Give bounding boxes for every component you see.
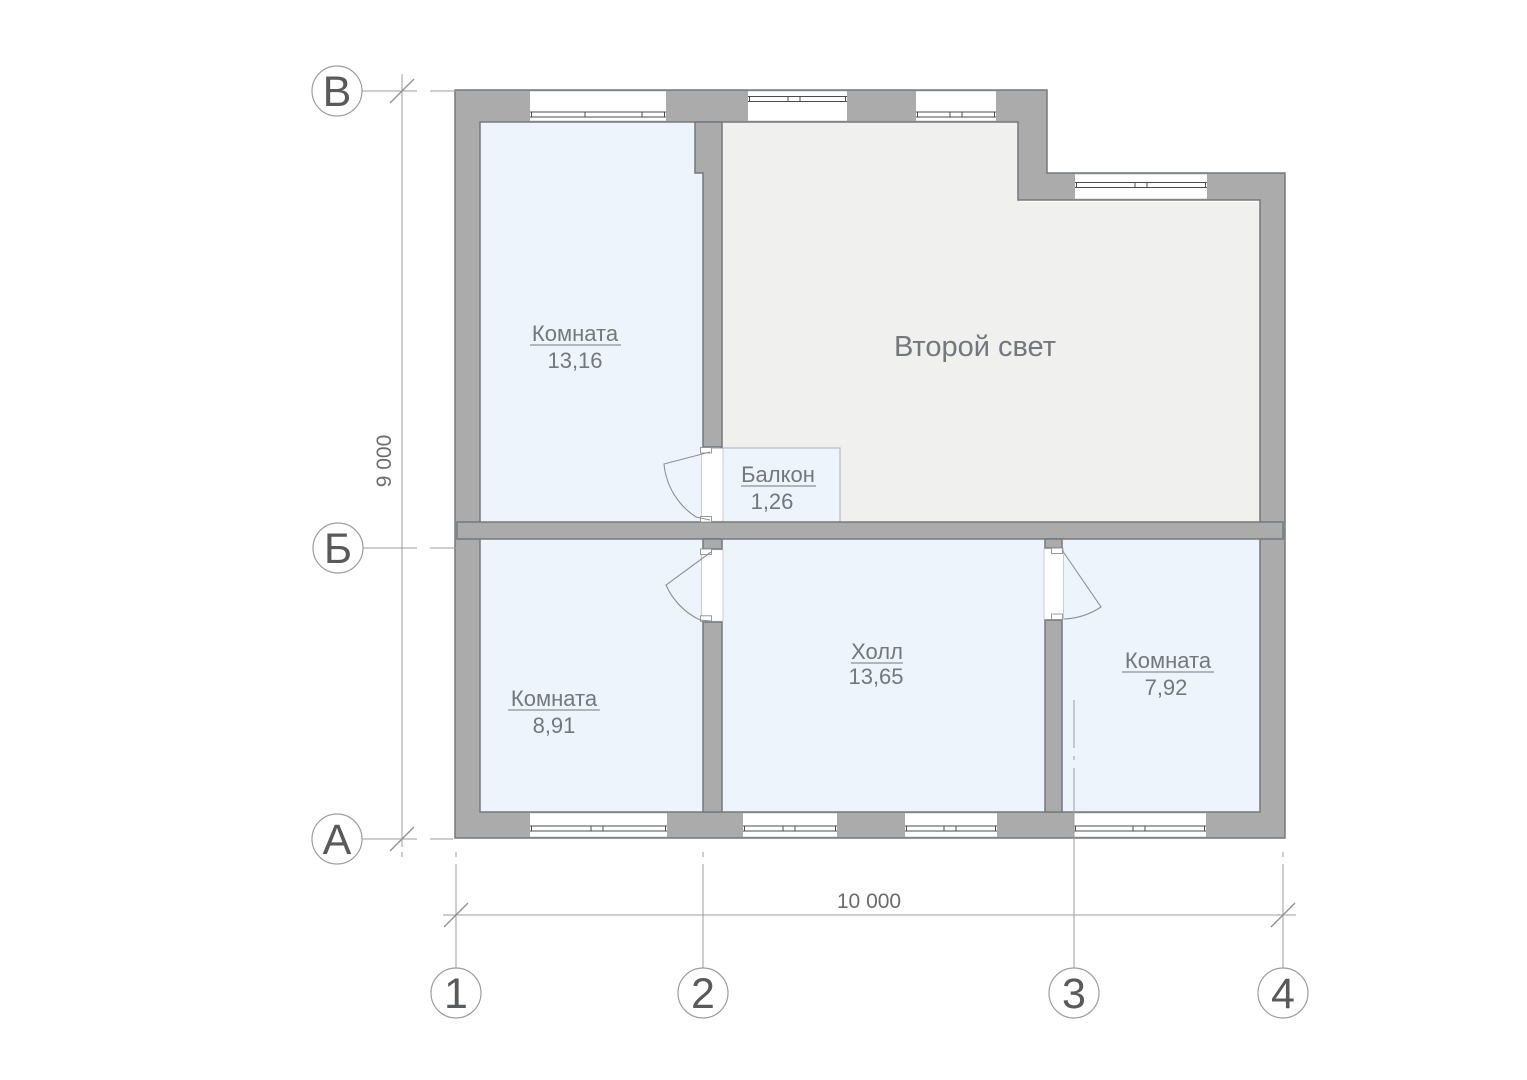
- room-area: 13,65: [848, 664, 903, 689]
- floor-plan-svg: В Б А 9 000 1 2: [0, 0, 1527, 1080]
- axis-col-2-label: 2: [691, 970, 715, 1018]
- axis-col-1-label: 1: [444, 970, 468, 1018]
- dimension-horizontal: 10 000: [443, 890, 1296, 927]
- room-name: Холл: [851, 639, 903, 664]
- room-area: 1,26: [751, 489, 794, 514]
- inner-wall-vertical-left-lower: [703, 622, 722, 812]
- room-label-hall: Холл 13,65: [848, 639, 903, 689]
- floor-plan-page: В Б А 9 000 1 2: [0, 0, 1527, 1080]
- room-label-second-light: Второй свет: [894, 331, 1056, 363]
- axis-col-3-label: 3: [1062, 970, 1086, 1018]
- window-top-1: [530, 91, 666, 120]
- inner-wall-vertical-right-stub: [1045, 539, 1062, 548]
- room-name: Второй свет: [894, 331, 1056, 363]
- window-step: [1075, 174, 1207, 198]
- room-name: Балкон: [741, 462, 815, 487]
- axis-col-2: 2: [678, 852, 728, 1018]
- axis-col-1: 1: [431, 852, 481, 1018]
- inner-wall-vertical-left-stub: [703, 539, 722, 549]
- axis-row-a-label: А: [323, 816, 352, 864]
- window-bottom-3: [905, 813, 997, 836]
- axis-row-v: В: [312, 66, 456, 116]
- room-area: 7,92: [1145, 675, 1188, 700]
- axis-row-b: Б: [313, 523, 456, 573]
- dimension-vertical-value: 9 000: [373, 435, 396, 488]
- inner-wall-vertical-right-lower: [1045, 620, 1062, 812]
- window-bottom-1: [530, 813, 667, 836]
- window-bottom-4: [1074, 813, 1206, 836]
- axis-row-b-label: Б: [324, 525, 352, 573]
- axis-row-a: А: [312, 814, 453, 864]
- window-top-2: [748, 91, 847, 120]
- room-name: Комната: [532, 321, 619, 346]
- room-name: Комната: [511, 686, 598, 711]
- room-name: Комната: [1125, 648, 1212, 673]
- room-komnata-bottom-left-fill: [478, 537, 704, 814]
- room-area: 13,16: [547, 348, 602, 373]
- axis-row-v-label: В: [323, 68, 352, 116]
- window-top-3: [916, 91, 996, 120]
- axis-col-4: 4: [1258, 852, 1308, 1018]
- inner-wall-b-level: [457, 522, 1283, 539]
- axis-col-4-label: 4: [1271, 970, 1295, 1018]
- dimension-horizontal-value: 10 000: [837, 890, 901, 913]
- room-area: 8,91: [533, 713, 576, 738]
- window-bottom-2: [743, 813, 837, 836]
- dimension-vertical: 9 000: [373, 74, 414, 857]
